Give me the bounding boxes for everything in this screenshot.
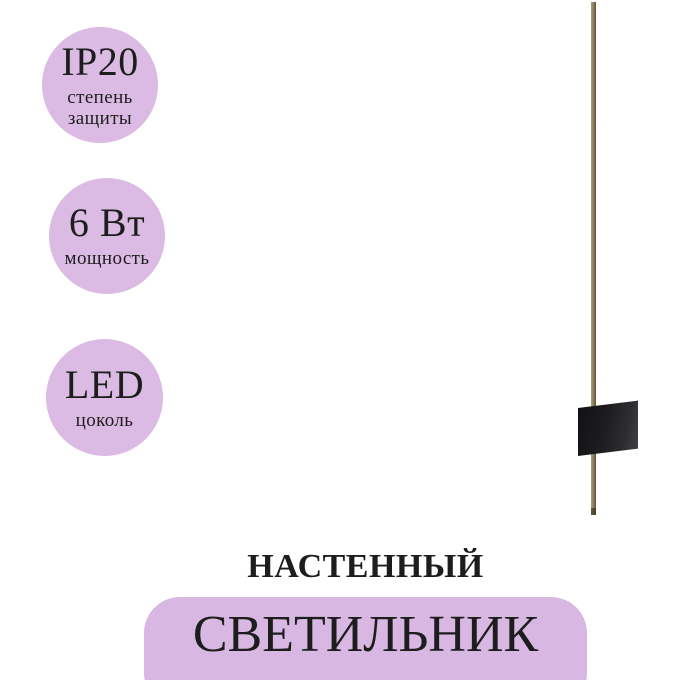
badge-power-label: мощность bbox=[65, 249, 150, 270]
badge-socket-label: цоколь bbox=[76, 411, 134, 432]
product-card: IP20 степень защиты 6 Вт мощность LED цо… bbox=[0, 0, 680, 680]
badge-ip-rating-label-line2: защиты bbox=[67, 109, 132, 130]
product-name-panel: СВЕТИЛЬНИК bbox=[144, 597, 587, 680]
badge-socket: LED цоколь bbox=[46, 339, 163, 456]
badge-ip-rating-label-line1: степень bbox=[67, 88, 132, 109]
lamp-wall-mount bbox=[578, 401, 638, 456]
badge-power-value: 6 Вт bbox=[69, 202, 145, 244]
badge-ip-rating: IP20 степень защиты bbox=[42, 27, 158, 143]
badge-power-label-line1: мощность bbox=[65, 249, 150, 270]
badge-socket-value: LED bbox=[65, 364, 144, 406]
badge-power: 6 Вт мощность bbox=[49, 178, 165, 294]
badge-ip-rating-label: степень защиты bbox=[67, 88, 132, 130]
badge-socket-label-line1: цоколь bbox=[76, 411, 134, 432]
product-type-label: НАСТЕННЫЙ bbox=[144, 548, 587, 586]
badge-ip-rating-value: IP20 bbox=[61, 41, 139, 83]
product-name-label: СВЕТИЛЬНИК bbox=[193, 606, 538, 663]
